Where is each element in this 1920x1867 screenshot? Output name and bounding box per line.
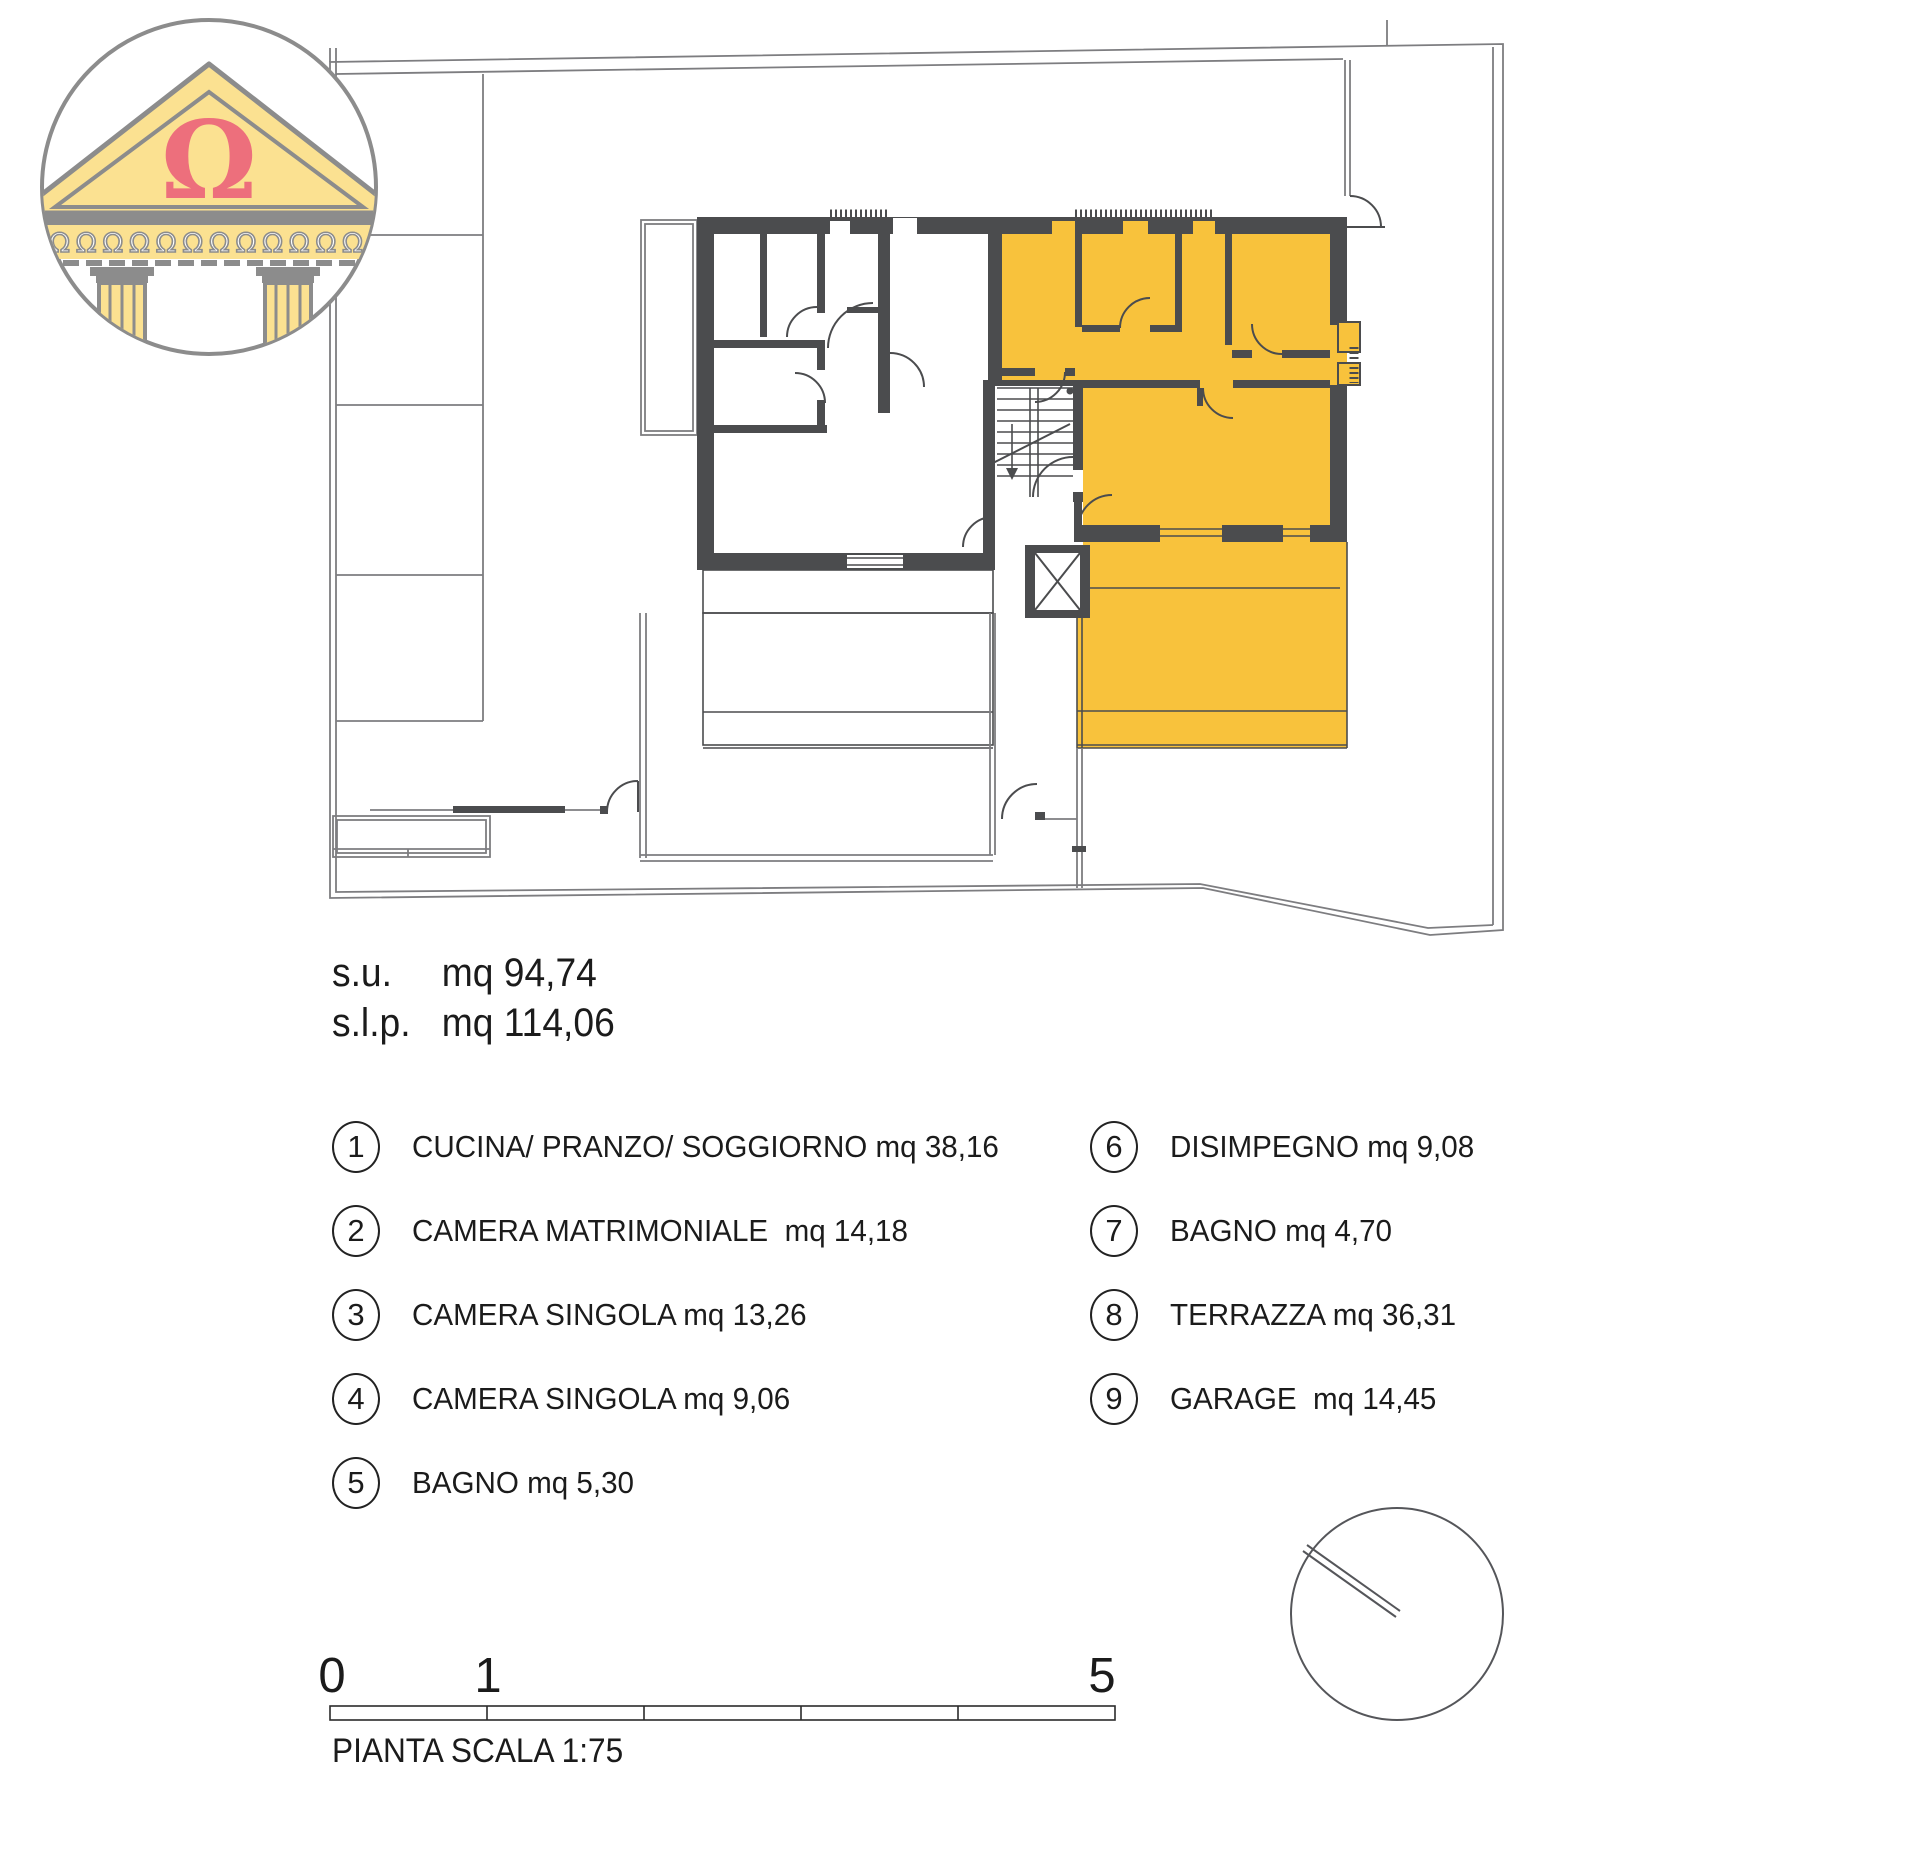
room-number-badge: 8 (1090, 1289, 1138, 1341)
legend-item-6: 6 DISIMPEGNO mq 9,08 (1090, 1121, 1484, 1173)
room-label: CAMERA MATRIMONIALE mq 14,18 (412, 1214, 908, 1249)
room-number-badge: 4 (332, 1373, 380, 1425)
stairwell-fill (983, 380, 1083, 555)
omega-frieze: ΩΩΩΩΩΩΩΩΩΩΩΩ (49, 228, 369, 259)
planter-boxes (333, 816, 490, 857)
room-number-badge: 1 (332, 1121, 380, 1173)
scale-bar (330, 1706, 1115, 1720)
left-balcony (641, 220, 697, 435)
su-label: s.u. (332, 948, 442, 998)
scale-tick-5: 5 (1082, 1648, 1122, 1704)
floor-plan-drawing: Ω ΩΩΩΩΩΩΩΩΩΩΩΩ (0, 0, 1920, 1867)
legend-item-9: 9 GARAGE mq 14,45 (1090, 1373, 1445, 1425)
plan-scale-caption: PIANTA SCALA 1:75 (332, 1732, 623, 1771)
legend-item-2: 2 CAMERA MATRIMONIALE mq 14,18 (332, 1205, 923, 1257)
room-number-badge: 6 (1090, 1121, 1138, 1173)
room-label: CUCINA/ PRANZO/ SOGGIORNO mq 38,16 (412, 1130, 999, 1165)
courtyard-gate-arc (1347, 196, 1385, 227)
legend-item-4: 4 CAMERA SINGOLA mq 9,06 (332, 1373, 802, 1425)
legend-item-7: 7 BAGNO mq 4,70 (1090, 1205, 1399, 1257)
legend-item-5: 5 BAGNO mq 5,30 (332, 1457, 641, 1509)
su-value: mq 94,74 (442, 948, 597, 998)
agency-logo: Ω ΩΩΩΩΩΩΩΩΩΩΩΩ (18, 20, 400, 363)
legend-item-3: 3 CAMERA SINGOLA mq 13,26 (332, 1289, 819, 1341)
room-label: BAGNO mq 5,30 (412, 1466, 634, 1501)
scale-tick-1: 1 (468, 1648, 508, 1704)
room-number-badge: 3 (332, 1289, 380, 1341)
north-needle (1303, 1545, 1400, 1617)
room-label: CAMERA SINGOLA mq 13,26 (412, 1298, 807, 1333)
legend-item-1: 1 CUCINA/ PRANZO/ SOGGIORNO mq 38,16 (332, 1121, 1017, 1173)
room-label: TERRAZZA mq 36,31 (1170, 1298, 1456, 1333)
room-number-badge: 9 (1090, 1373, 1138, 1425)
net-area-row: s.u. mq 94,74 (332, 948, 615, 998)
room-label: CAMERA SINGOLA mq 9,06 (412, 1382, 790, 1417)
terrace-fill (1077, 542, 1347, 748)
omega-symbol: Ω (161, 98, 257, 224)
room-label: BAGNO mq 4,70 (1170, 1214, 1392, 1249)
elevator (1025, 545, 1090, 618)
room-number-badge: 5 (332, 1457, 380, 1509)
walkway-gate-arc (1002, 784, 1037, 819)
scale-tick-0: 0 (312, 1648, 352, 1704)
logo-column-right (256, 267, 320, 363)
garden-fence (370, 781, 638, 814)
room-number-badge: 2 (332, 1205, 380, 1257)
room-label: GARAGE mq 14,45 (1170, 1382, 1436, 1417)
north-indicator (1291, 1508, 1503, 1720)
left-unit-terrace (640, 570, 995, 861)
gross-area-row: s.l.p. mq 114,06 (332, 998, 615, 1048)
slp-value: mq 114,06 (442, 998, 615, 1048)
garden-gate-arc (607, 781, 638, 812)
room-number-badge: 7 (1090, 1205, 1138, 1257)
legend-item-8: 8 TERRAZZA mq 36,31 (1090, 1289, 1465, 1341)
area-summary: s.u. mq 94,74 s.l.p. mq 114,06 (332, 948, 615, 1048)
room-label: DISIMPEGNO mq 9,08 (1170, 1130, 1474, 1165)
slp-label: s.l.p. (332, 998, 442, 1048)
entrance-walkway (1002, 784, 1077, 820)
